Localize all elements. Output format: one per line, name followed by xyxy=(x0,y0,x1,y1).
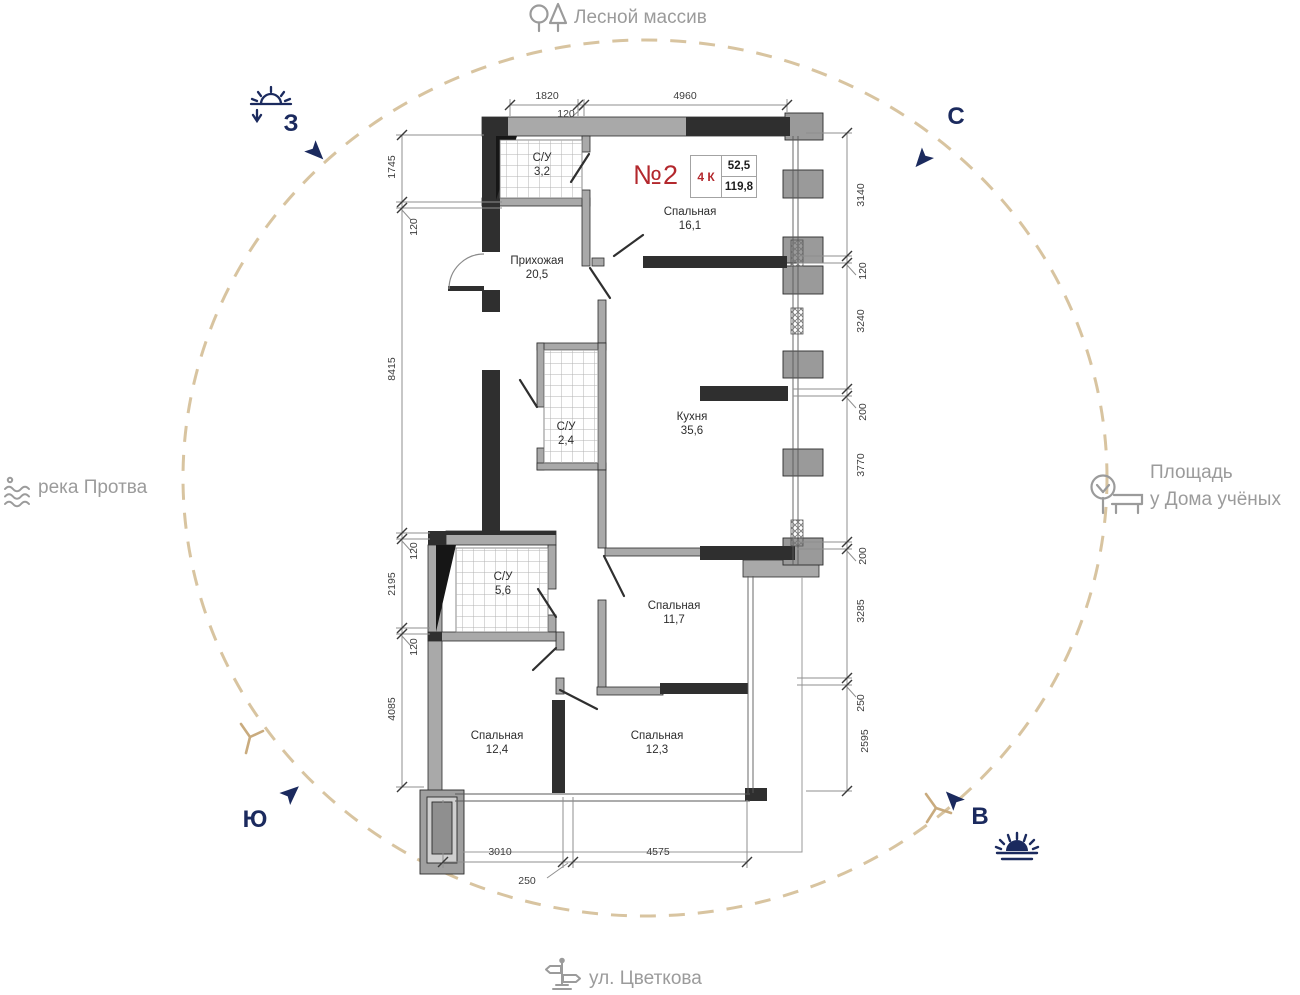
room-name: Спальная xyxy=(629,600,719,614)
dim-top-1: 120 xyxy=(538,108,594,120)
dim-left-4: 2195 xyxy=(386,556,398,612)
dim-right-1: 120 xyxy=(857,243,869,299)
room-label-bedroom-4: Спальная 12,3 xyxy=(612,730,702,757)
room-name: Спальная xyxy=(452,730,542,744)
compass-west: З xyxy=(271,110,311,138)
dim-right-6: 3285 xyxy=(855,583,867,639)
room-area: 16,1 xyxy=(645,220,735,234)
south-arrow-icon xyxy=(279,780,304,805)
room-area: 12,4 xyxy=(452,744,542,758)
room-area: 35,6 xyxy=(647,425,737,439)
unit-type: 4 К xyxy=(691,156,722,197)
dim-bottom-2: 4575 xyxy=(630,846,686,858)
room-area: 12,3 xyxy=(612,744,702,758)
dim-bottom-1: 250 xyxy=(499,875,555,887)
room-name: С/У xyxy=(497,152,587,166)
dim-left-3: 120 xyxy=(408,523,420,579)
forest-icon xyxy=(531,4,567,31)
unit-total-area: 119,8 xyxy=(722,177,756,198)
dimension-lines xyxy=(396,99,856,878)
dim-bottom-0: 3010 xyxy=(472,846,528,858)
room-label-hallway: Прихожая 20,5 xyxy=(492,255,582,282)
room-label-bedroom-3: Спальная 12,4 xyxy=(452,730,542,757)
room-name: С/У xyxy=(521,421,611,435)
room-area: 3,2 xyxy=(497,166,587,180)
exterior-step xyxy=(420,790,464,874)
park-bench-icon xyxy=(1092,476,1143,514)
room-name: С/У xyxy=(458,571,548,585)
twig-icon-south xyxy=(241,724,263,753)
room-label-bathroom-1: С/У 3,2 xyxy=(497,152,587,179)
dim-right-2: 3240 xyxy=(855,293,867,349)
twig-marks xyxy=(241,724,951,822)
plan-walls xyxy=(420,113,823,874)
dim-top-2: 4960 xyxy=(657,90,713,102)
dim-left-0: 1745 xyxy=(386,139,398,195)
compass-south: Ю xyxy=(235,806,275,834)
room-label-kitchen: Кухня 35,6 xyxy=(647,411,737,438)
compass-east: В xyxy=(960,803,1000,831)
room-label-bedroom-2: Спальная 11,7 xyxy=(629,600,719,627)
sunrise-icon xyxy=(996,833,1038,859)
room-label-bedroom-1: Спальная 16,1 xyxy=(645,206,735,233)
dim-right-0: 3140 xyxy=(855,167,867,223)
room-area: 5,6 xyxy=(458,585,548,599)
floor-plan-page: Лесной массив река Протва Площадь у Дома… xyxy=(0,0,1300,995)
room-name: Кухня xyxy=(647,411,737,425)
dim-right-4: 3770 xyxy=(855,437,867,493)
room-name: Спальная xyxy=(612,730,702,744)
north-arrow-icon xyxy=(909,147,934,172)
landmark-square-label-line2: у Дома учёных xyxy=(1150,489,1281,511)
bathroom-tiles xyxy=(456,140,598,632)
dim-left-5: 120 xyxy=(408,619,420,675)
room-name: Прихожая xyxy=(492,255,582,269)
unit-living-area: 52,5 xyxy=(722,156,756,177)
room-area: 20,5 xyxy=(492,269,582,283)
street-sign-icon xyxy=(546,959,580,989)
landmark-river-label: река Протва xyxy=(38,477,147,499)
facade-pilasters xyxy=(783,113,823,565)
room-area: 2,4 xyxy=(521,435,611,449)
landmark-street-label: ул. Цветкова xyxy=(589,968,702,990)
room-name: Спальная xyxy=(645,206,735,220)
room-label-bathroom-3: С/У 5,6 xyxy=(458,571,548,598)
dim-left-6: 4085 xyxy=(386,681,398,737)
landmark-square-label-line1: Площадь xyxy=(1150,462,1233,484)
dim-right-5: 200 xyxy=(857,528,869,584)
dim-left-1: 120 xyxy=(408,199,420,255)
dim-top-0: 1820 xyxy=(519,90,575,102)
compass-north: С xyxy=(936,103,976,131)
dim-right-8: 2595 xyxy=(859,713,871,769)
room-label-bathroom-2: С/У 2,4 xyxy=(521,421,611,448)
room-area: 11,7 xyxy=(629,614,719,628)
unit-info-box: 4 К 52,5 119,8 xyxy=(690,155,757,198)
entrance-door-arc xyxy=(449,254,484,289)
dim-left-2: 8415 xyxy=(386,341,398,397)
dim-right-3: 200 xyxy=(857,384,869,440)
river-icon xyxy=(5,478,29,506)
window-glazing xyxy=(455,136,798,801)
landmark-forest-label: Лесной массив xyxy=(574,7,707,29)
